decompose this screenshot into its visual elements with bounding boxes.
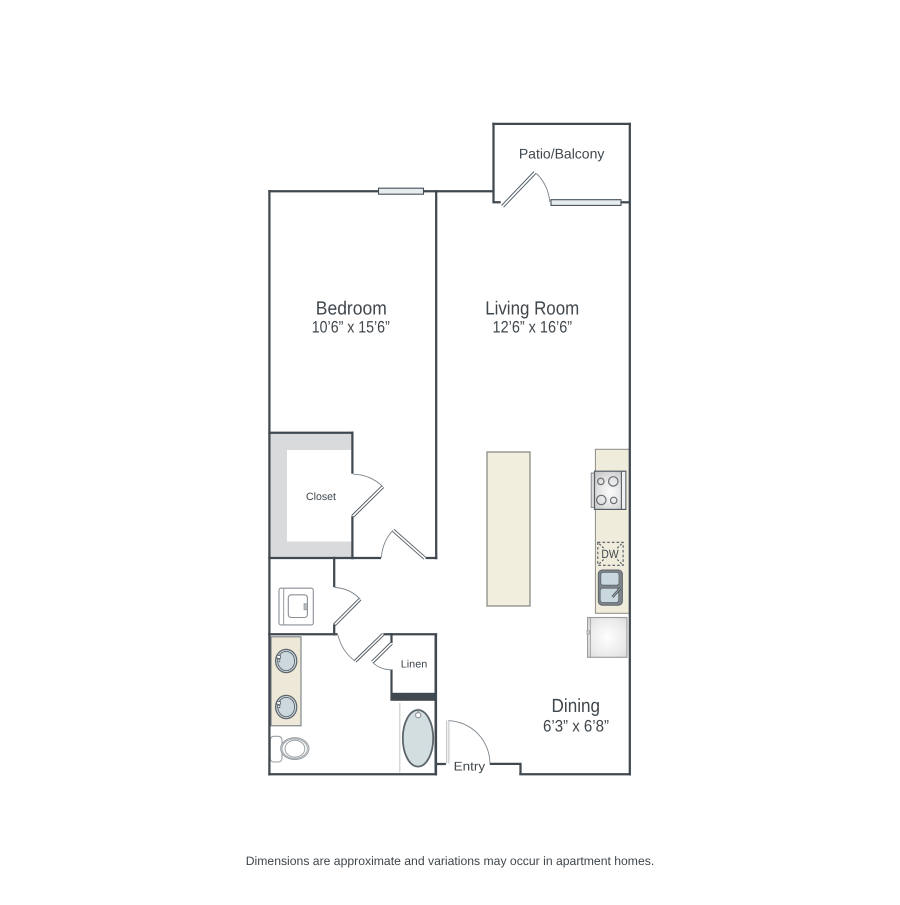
- svg-text:6’3” x 6’8”: 6’3” x 6’8”: [543, 717, 609, 736]
- svg-text:Linen: Linen: [401, 658, 428, 670]
- svg-text:DW: DW: [601, 547, 619, 561]
- svg-text:Closet: Closet: [306, 491, 336, 503]
- svg-text:10’6” x 15’6”: 10’6” x 15’6”: [312, 317, 390, 336]
- svg-text:Dining: Dining: [552, 696, 601, 717]
- svg-text:12’6” x 16’6”: 12’6” x 16’6”: [493, 317, 573, 336]
- svg-text:Living Room: Living Room: [485, 298, 579, 319]
- svg-text:Entry: Entry: [454, 760, 486, 774]
- svg-text:Dimensions are approximate and: Dimensions are approximate and variation…: [246, 854, 654, 868]
- svg-text:Patio/Balcony: Patio/Balcony: [519, 146, 605, 162]
- svg-text:Bedroom: Bedroom: [316, 298, 387, 319]
